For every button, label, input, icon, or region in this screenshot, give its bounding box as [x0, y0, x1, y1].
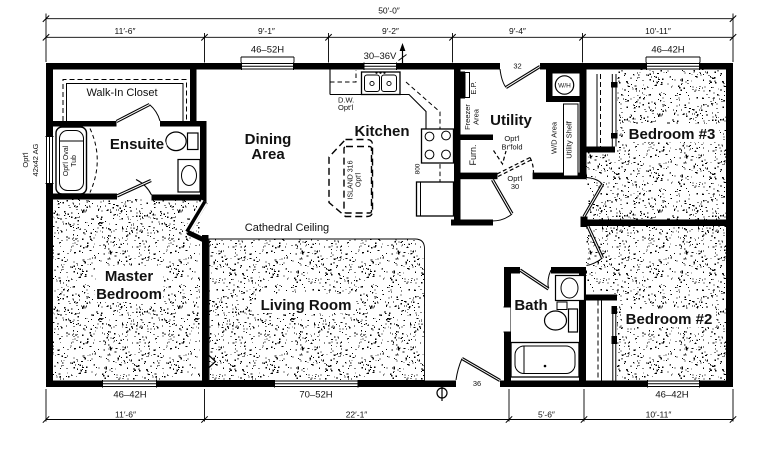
svg-text:Tub: Tub	[71, 155, 78, 167]
svg-text:30–36V: 30–36V	[364, 51, 397, 62]
svg-text:Bedroom: Bedroom	[96, 286, 162, 303]
svg-text:36: 36	[473, 379, 481, 388]
svg-text:46–42H: 46–42H	[651, 45, 684, 56]
svg-text:30: 30	[511, 182, 519, 191]
svg-text:11′-6″: 11′-6″	[115, 26, 136, 36]
svg-text:Area: Area	[472, 108, 481, 125]
svg-text:5′-6″: 5′-6″	[538, 410, 555, 420]
svg-text:Bath: Bath	[514, 297, 547, 314]
svg-text:Area: Area	[251, 146, 285, 163]
svg-text:22′-1″: 22′-1″	[346, 410, 368, 420]
svg-text:46–42H: 46–42H	[113, 390, 146, 401]
svg-text:70–52H: 70–52H	[299, 390, 332, 401]
svg-text:32: 32	[513, 62, 521, 71]
svg-text:Br′fold: Br′fold	[502, 143, 523, 152]
svg-text:ISLAND 316: ISLAND 316	[348, 160, 355, 199]
svg-text:Bedroom #2: Bedroom #2	[626, 311, 713, 328]
svg-text:Ensuite: Ensuite	[110, 136, 164, 153]
svg-text:Opt′l: Opt′l	[338, 103, 353, 112]
svg-text:9′-2″: 9′-2″	[382, 26, 399, 36]
svg-text:11′-6″: 11′-6″	[115, 410, 136, 420]
svg-text:Utility: Utility	[490, 112, 532, 129]
svg-text:Cathedral Ceiling: Cathedral Ceiling	[245, 222, 329, 234]
svg-text:50′-0″: 50′-0″	[378, 6, 400, 16]
svg-text:W/H: W/H	[558, 83, 571, 90]
svg-text:Master: Master	[105, 268, 154, 285]
svg-text:Opt′l: Opt′l	[356, 172, 363, 187]
svg-text:10′-11″: 10′-11″	[646, 410, 672, 420]
svg-text:Living Room: Living Room	[261, 297, 352, 314]
svg-text:9′-1″: 9′-1″	[258, 26, 275, 36]
svg-text:W/D Area: W/D Area	[550, 121, 559, 154]
svg-text:10′-11″: 10′-11″	[645, 26, 671, 36]
svg-text:Opt′l: Opt′l	[21, 152, 30, 167]
svg-text:Utility Shelf: Utility Shelf	[565, 120, 574, 158]
svg-text:46–52H: 46–52H	[251, 45, 284, 56]
svg-text:9′-4″: 9′-4″	[509, 26, 526, 36]
svg-text:Opt′l Oval: Opt′l Oval	[63, 145, 70, 176]
svg-text:46–42H: 46–42H	[655, 390, 688, 401]
svg-text:Kitchen: Kitchen	[354, 123, 409, 140]
svg-text:Bedroom #3: Bedroom #3	[629, 126, 716, 143]
svg-text:E.P.: E.P.	[469, 81, 478, 94]
svg-text:Furn.: Furn.	[468, 144, 478, 165]
svg-text:800: 800	[415, 163, 422, 174]
svg-text:42x42 AG: 42x42 AG	[31, 143, 40, 176]
svg-text:Walk-In Closet: Walk-In Closet	[86, 87, 157, 99]
